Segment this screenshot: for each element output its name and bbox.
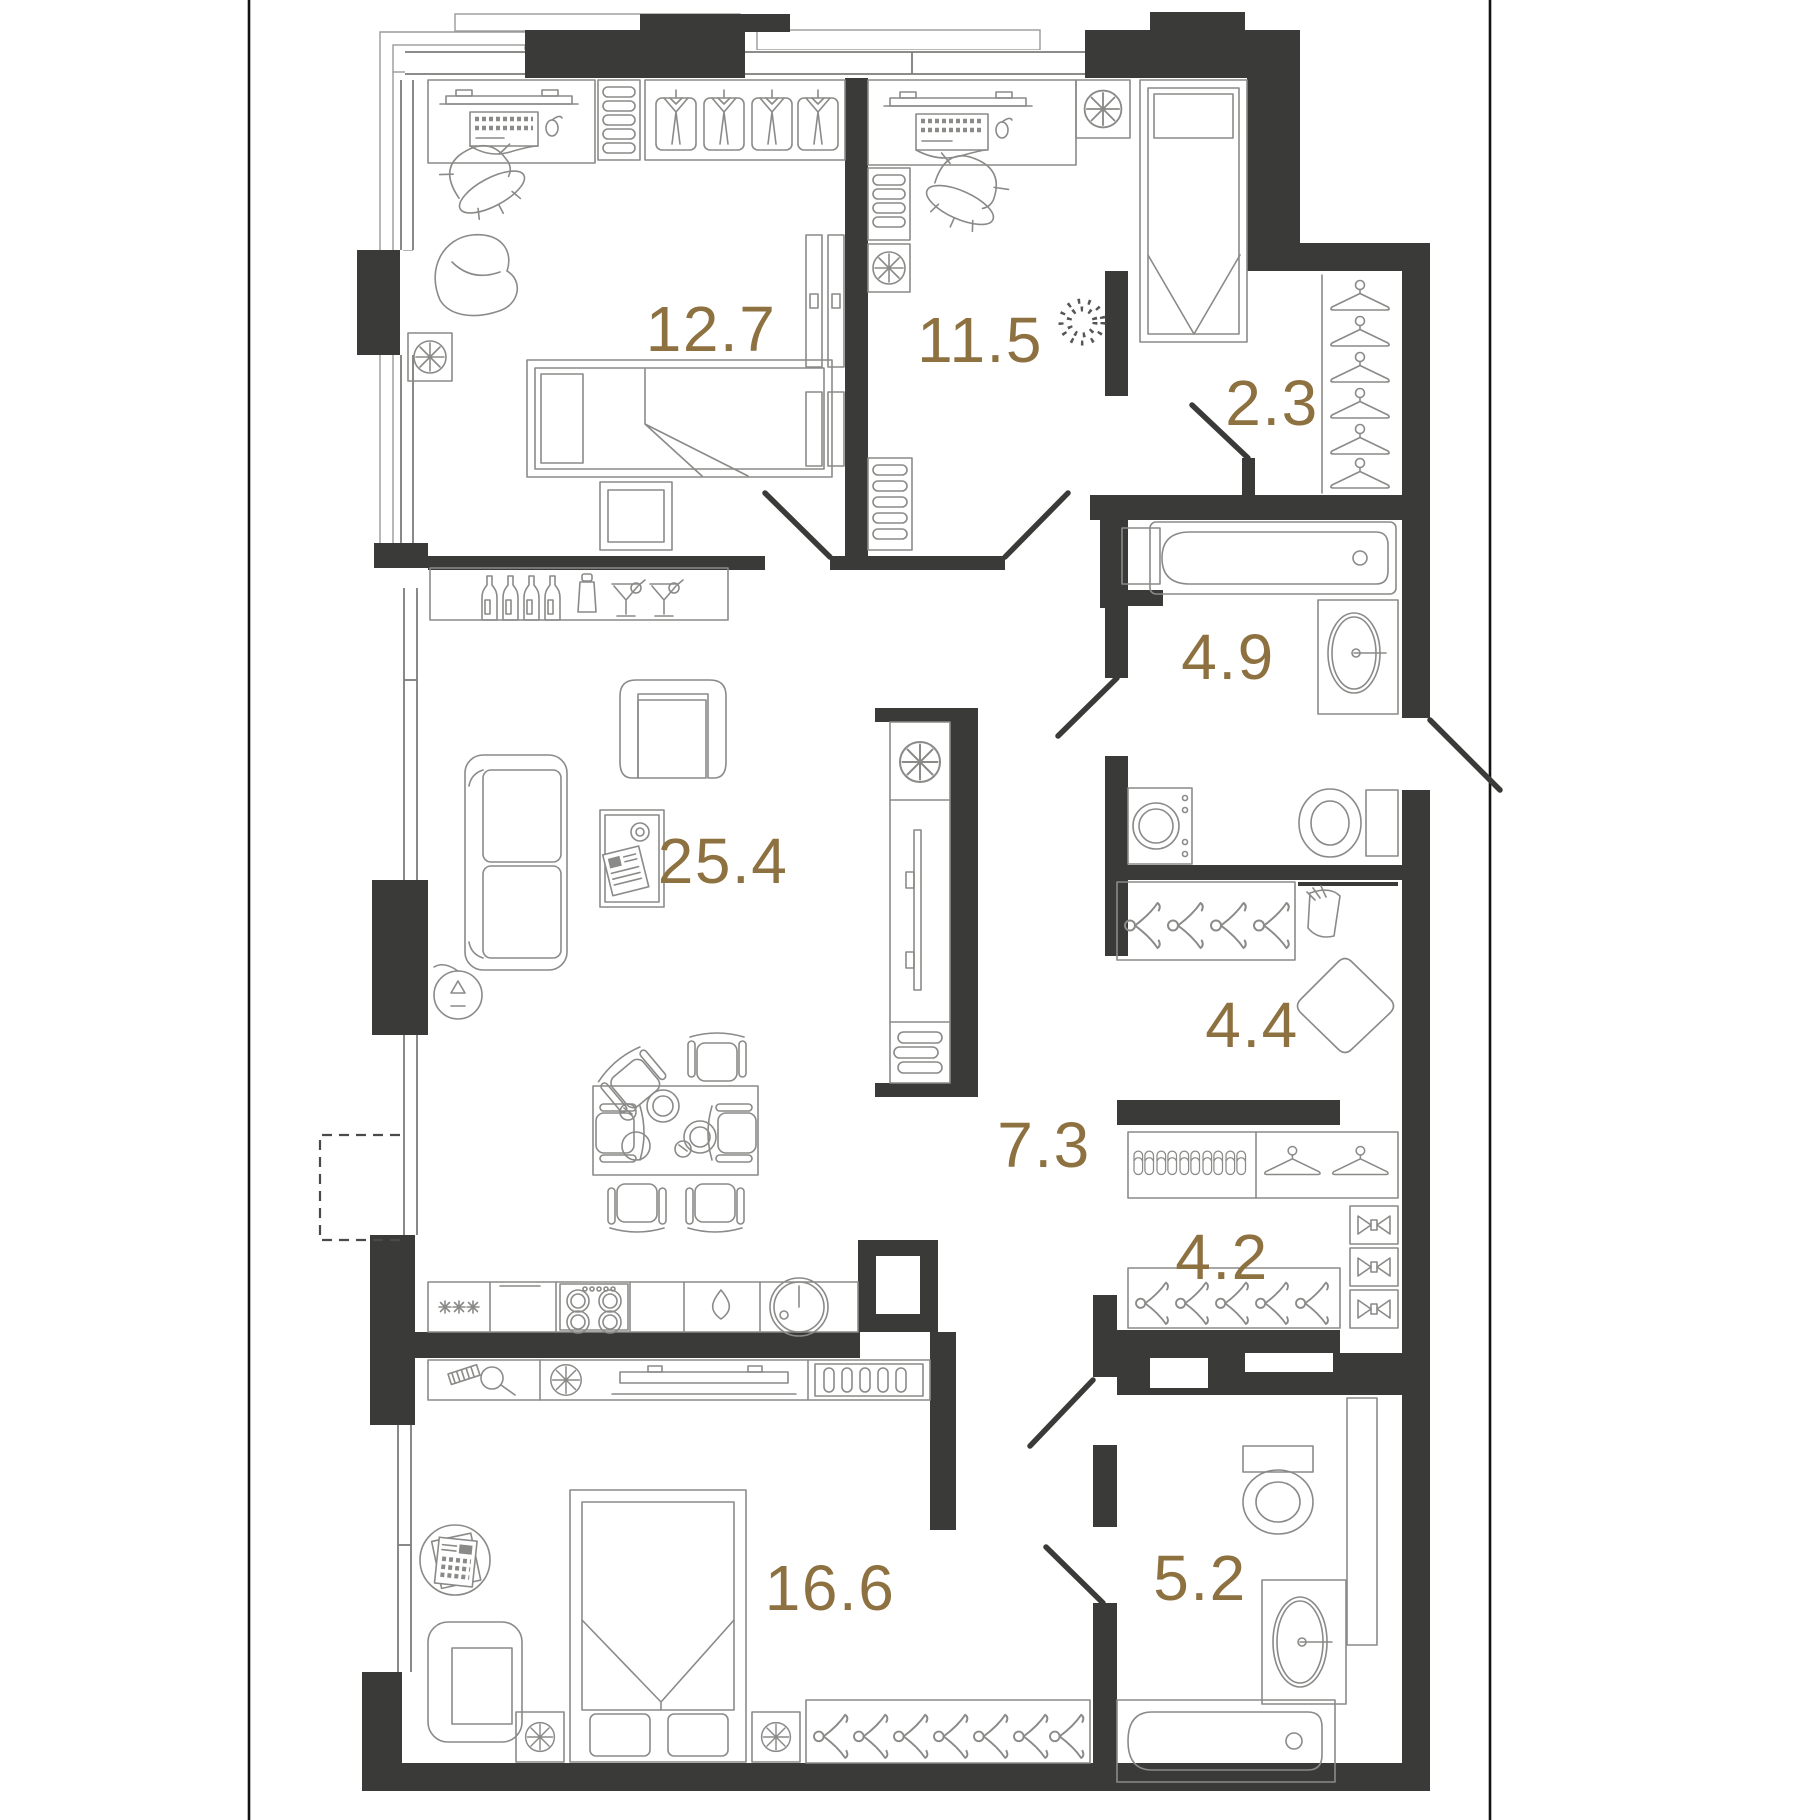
stove-icon xyxy=(560,1284,628,1333)
room-living-kitchen xyxy=(428,568,950,1336)
hangers-icon xyxy=(1265,1146,1388,1174)
washing-machine-icon xyxy=(1128,788,1192,864)
radiator-panels-icon xyxy=(806,235,844,466)
tv-stand-icon xyxy=(890,722,950,1083)
shaker-icon xyxy=(578,574,596,612)
label-area-25-4: 25.4 xyxy=(658,825,789,897)
nightstand-icon xyxy=(752,1712,800,1762)
window-left-1 xyxy=(399,80,415,250)
keyboard-icon xyxy=(470,112,538,154)
bar-shelf-icon xyxy=(430,568,728,620)
desk-icon xyxy=(428,80,595,163)
label-area-4-4: 4.4 xyxy=(1205,989,1298,1061)
label-area-7-3: 7.3 xyxy=(997,1109,1090,1181)
chairs-icon xyxy=(594,1033,756,1232)
label-area-12-7: 12.7 xyxy=(646,293,777,365)
double-bed-icon xyxy=(570,1490,746,1762)
label-area-16-6: 16.6 xyxy=(765,1552,896,1624)
bottles-icon xyxy=(482,576,560,620)
kitchen-sink-icon xyxy=(770,1278,828,1336)
duct-icon xyxy=(1347,1398,1377,1645)
toilet-icon xyxy=(1243,1446,1313,1534)
shelf-icon xyxy=(598,80,640,160)
label-area-4-9: 4.9 xyxy=(1181,621,1274,693)
mouse-icon xyxy=(546,116,562,136)
room-bedroom-bottom xyxy=(420,1360,1090,1763)
sofa-icon xyxy=(465,755,567,970)
room-labels: 12.7 11.5 2.3 4.9 25.4 4.4 7.3 4.2 16.6 … xyxy=(646,293,1319,1624)
room-bathroom-top xyxy=(1122,522,1398,864)
window-room2-top xyxy=(745,50,1085,76)
plant-icon xyxy=(1061,301,1103,343)
single-bed-icon xyxy=(1140,80,1247,342)
room-bedroom-top-left xyxy=(408,80,845,550)
door-bedroom-top-left xyxy=(765,493,830,557)
door-bedroom-bottom xyxy=(1030,1380,1093,1446)
tv-icon xyxy=(612,1366,796,1394)
floor-plan-page: 12.7 11.5 2.3 4.9 25.4 4.4 7.3 4.2 16.6 … xyxy=(0,0,1820,1820)
door-bedroom-top-middle xyxy=(1005,493,1068,557)
hangers-icon xyxy=(1331,281,1389,489)
wardrobe-shirts-icon xyxy=(645,80,845,160)
pouf-icon xyxy=(1298,959,1394,1053)
hangers-icon xyxy=(806,1700,1090,1763)
keyboard-icon xyxy=(916,114,988,158)
nightstand-icon xyxy=(516,1712,564,1762)
newspaper-icon xyxy=(420,1525,490,1595)
radiator-icon xyxy=(1076,80,1130,138)
bathtub-icon xyxy=(1150,522,1396,594)
window-living-2 xyxy=(402,1035,420,1235)
mouse-icon xyxy=(996,118,1012,138)
window-bedroom xyxy=(396,1425,414,1672)
balcony-projection-dashed xyxy=(320,1135,400,1240)
shelf-icon xyxy=(868,458,912,550)
desk-icon xyxy=(868,80,1076,165)
label-area-11-5: 11.5 xyxy=(917,304,1043,376)
mirror-icon xyxy=(1298,884,1398,937)
window-bay-top xyxy=(405,50,525,76)
fridge-icon xyxy=(439,1301,479,1313)
room-closet-top xyxy=(1322,275,1389,493)
office-chair-icon xyxy=(916,145,1015,242)
sink-icon xyxy=(1262,1580,1346,1704)
door-bathroom-bottom xyxy=(1046,1547,1103,1603)
toilet-icon xyxy=(1299,789,1398,857)
single-bed-icon xyxy=(527,360,832,477)
door-bathroom-top xyxy=(1058,678,1117,736)
shelf-icon xyxy=(868,168,910,240)
drop-icon xyxy=(713,1290,730,1319)
walls xyxy=(357,12,1430,1791)
martini-glasses-icon xyxy=(612,580,683,616)
kitchen-counter-icon xyxy=(428,1278,858,1336)
dresser-icon xyxy=(428,1360,930,1400)
radiator-icon xyxy=(868,244,910,292)
tv-icon xyxy=(600,482,672,550)
bean-bag-icon xyxy=(435,235,517,316)
label-area-4-2: 4.2 xyxy=(1175,1221,1268,1293)
label-area-5-2: 5.2 xyxy=(1153,1542,1246,1614)
sink-icon xyxy=(1318,600,1398,714)
armchair-icon xyxy=(620,680,726,778)
armchair-icon xyxy=(428,1622,522,1742)
folded-shirts-boxes-icon xyxy=(1350,1206,1398,1328)
bottles-icon xyxy=(815,1364,923,1396)
slippers-icon xyxy=(1128,1132,1398,1198)
floor-lamp-icon xyxy=(434,965,482,1019)
bathtub-icon xyxy=(1117,1700,1335,1782)
coffee-table-icon xyxy=(600,810,664,907)
floor-plan-drawing: 12.7 11.5 2.3 4.9 25.4 4.4 7.3 4.2 16.6 … xyxy=(0,0,1820,1820)
window-left-2 xyxy=(399,355,415,555)
coat-hangers-icon xyxy=(1117,882,1295,960)
label-area-2-3: 2.3 xyxy=(1225,367,1318,439)
window-living-1 xyxy=(402,588,420,880)
